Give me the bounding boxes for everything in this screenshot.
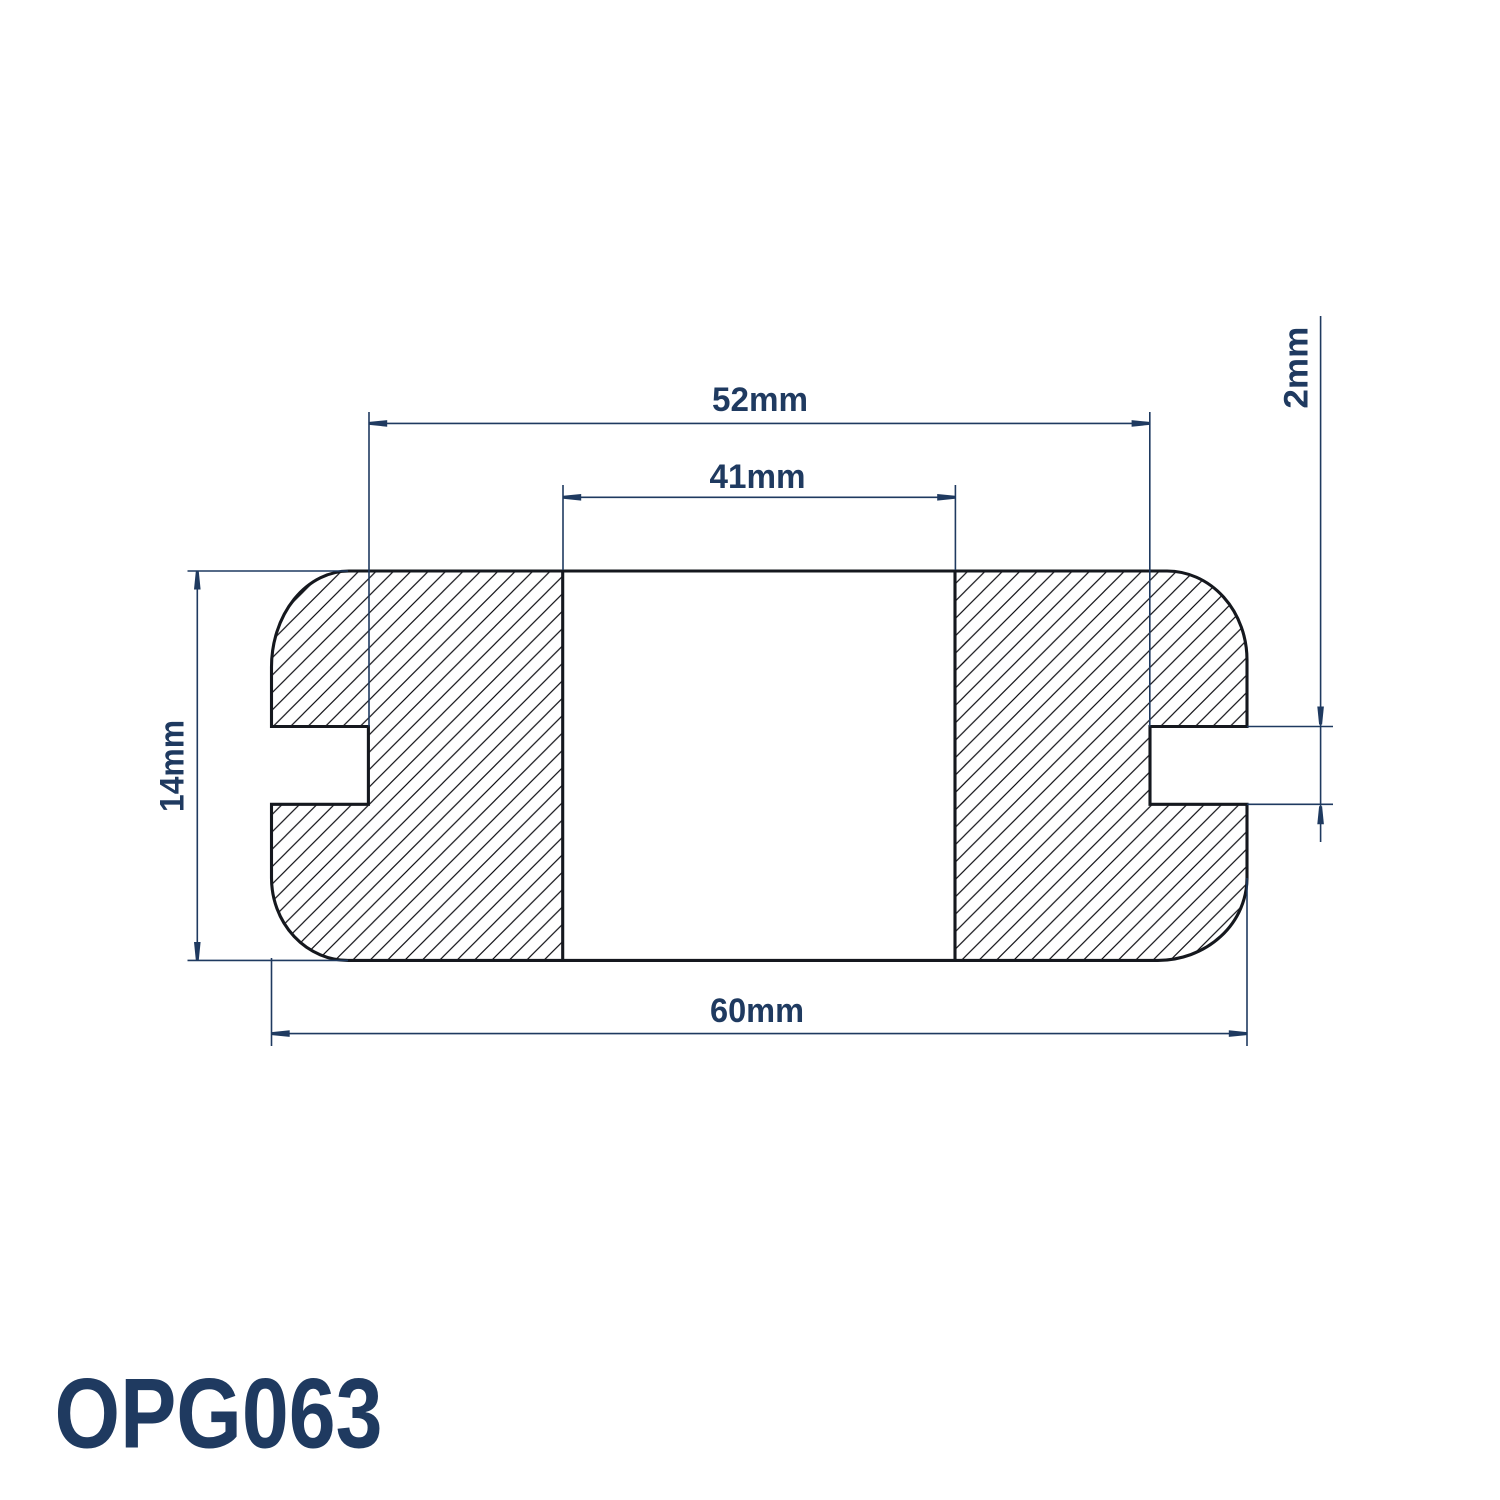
- svg-text:52mm: 52mm: [712, 381, 808, 419]
- svg-text:OPG063: OPG063: [55, 1358, 383, 1469]
- svg-text:2mm: 2mm: [1278, 327, 1316, 409]
- svg-text:41mm: 41mm: [710, 458, 806, 496]
- svg-text:60mm: 60mm: [710, 992, 804, 1030]
- svg-text:14mm: 14mm: [154, 720, 192, 812]
